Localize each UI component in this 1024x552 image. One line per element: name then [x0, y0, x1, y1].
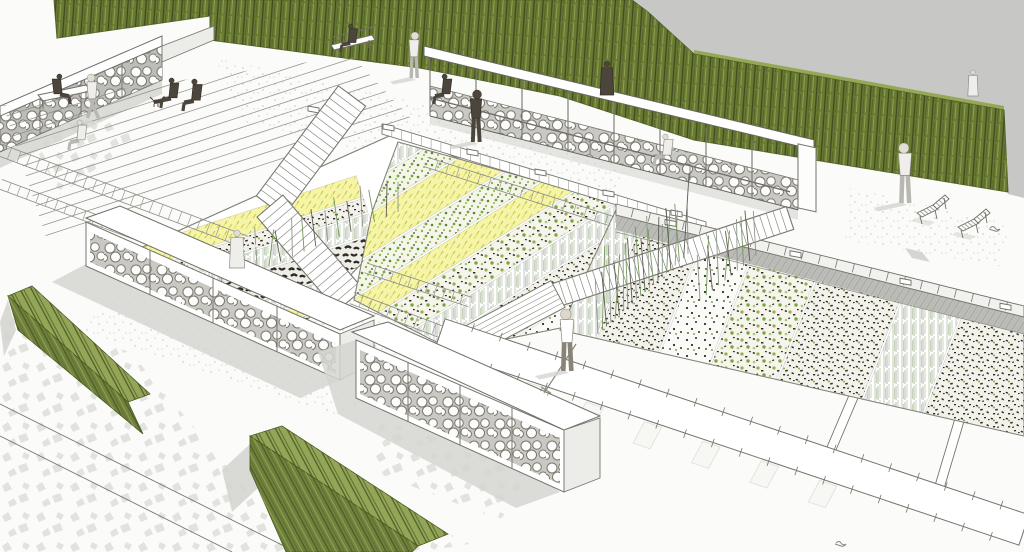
architectural-rendering	[0, 0, 1024, 552]
rendering-canvas	[0, 0, 1024, 552]
